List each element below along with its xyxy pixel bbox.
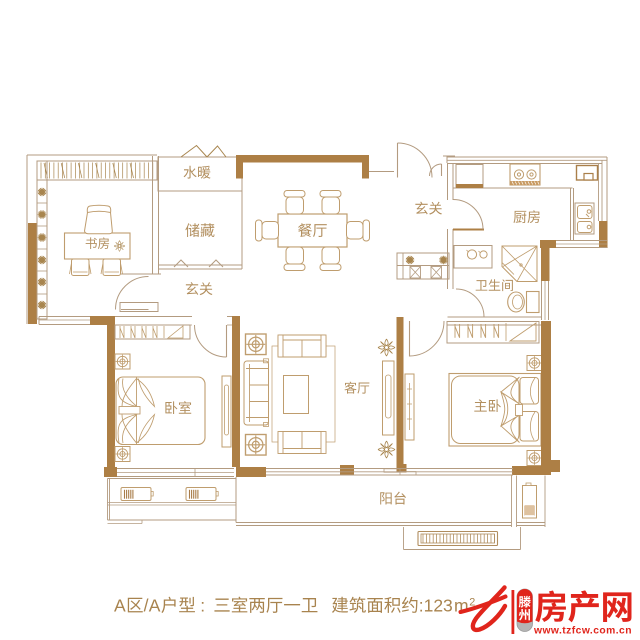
svg-text:123: 123: [424, 596, 453, 616]
svg-text:A: A: [149, 596, 161, 616]
svg-text:A: A: [114, 596, 126, 616]
svg-text::: :: [200, 596, 205, 616]
svg-text:www.tzfcw.com.cn: www.tzfcw.com.cn: [533, 626, 632, 637]
